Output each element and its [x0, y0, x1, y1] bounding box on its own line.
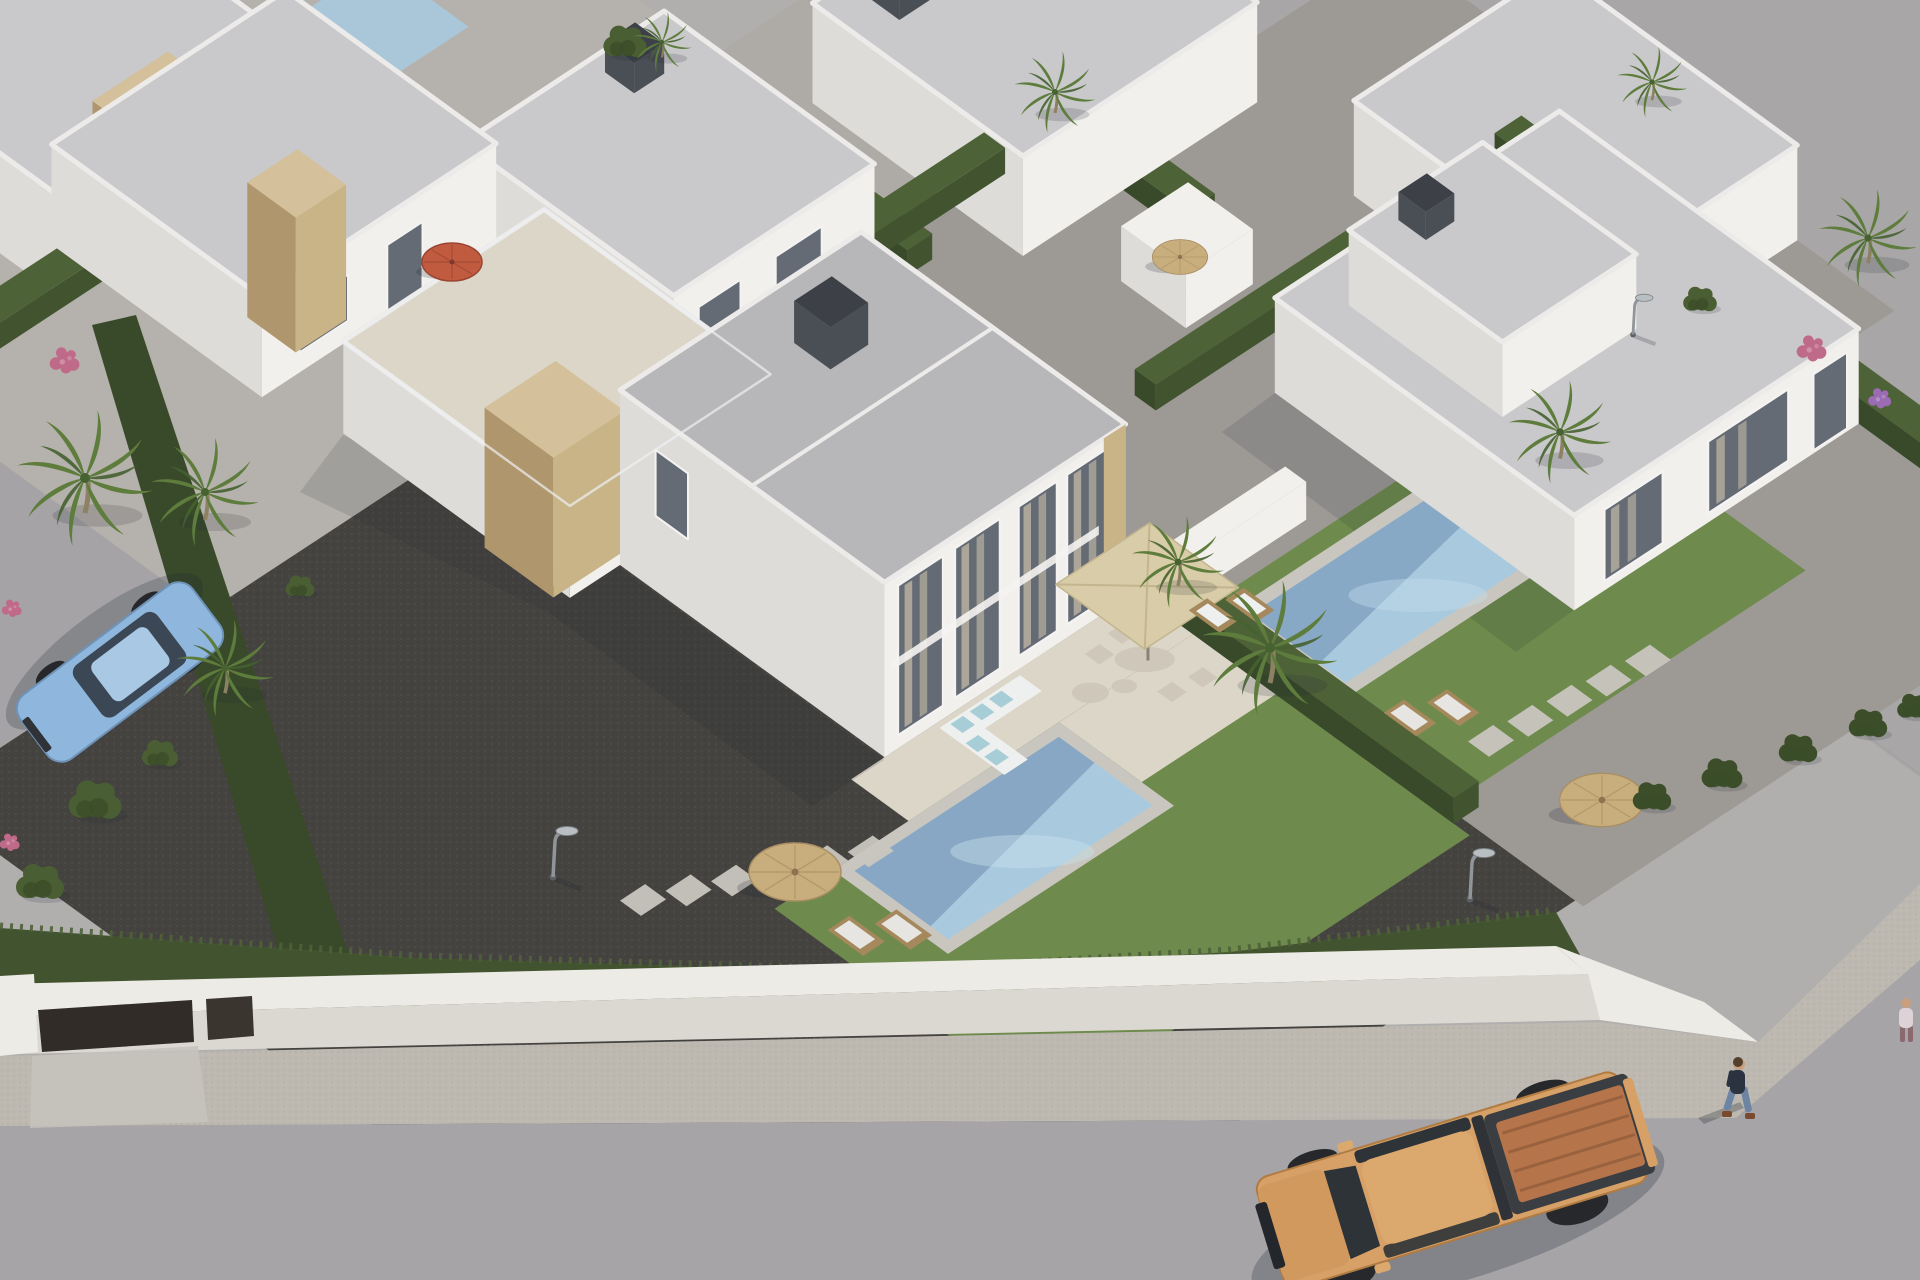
scene-canvas	[0, 0, 1920, 1280]
pedestrian-leg	[1908, 1026, 1913, 1042]
pedestrian-gate	[206, 996, 254, 1040]
pedestrian-shoe	[1722, 1111, 1732, 1117]
aerial-render-scene	[0, 0, 1920, 1280]
driveway-apron	[30, 1046, 208, 1128]
villa-right-window	[1611, 504, 1619, 574]
pedestrian-head	[1901, 998, 1911, 1008]
right-pool-caustic	[1348, 579, 1487, 612]
pedestrian-shoe	[1745, 1113, 1755, 1119]
coffee-table	[1112, 679, 1138, 693]
gate-pillar	[0, 974, 38, 1056]
hero-pool-caustic	[950, 835, 1094, 868]
coffee-table	[1072, 683, 1109, 703]
villa-right-window	[1716, 435, 1724, 505]
pedestrian-torso	[1899, 1008, 1913, 1028]
pedestrian-leg	[1900, 1026, 1905, 1042]
pedestrian-hair	[1733, 1057, 1743, 1067]
villa-right-window	[1628, 493, 1636, 563]
villa-right-window	[1738, 420, 1746, 490]
dining-table	[1115, 647, 1175, 673]
